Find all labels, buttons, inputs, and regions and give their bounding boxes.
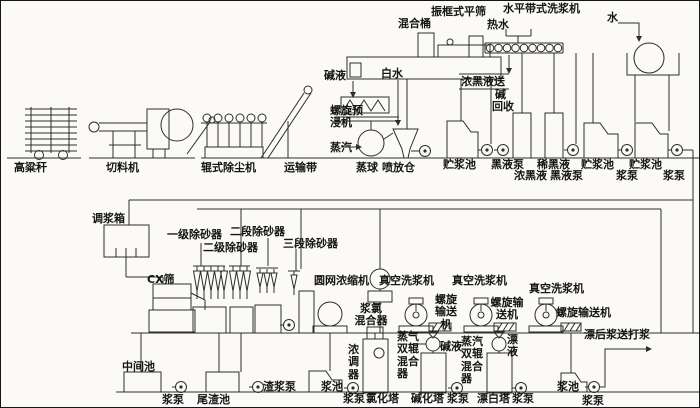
- label-horizontal-belt-washer: 水平带式洗浆机: [503, 3, 580, 15]
- treatment-towers: [363, 327, 512, 393]
- label-pulp-pump-7: 浆泵: [582, 395, 604, 407]
- horizontal-belt-washer: [469, 29, 563, 57]
- label-steam-inlet: 蒸汽: [330, 142, 352, 154]
- label-stock-blending-box: 调浆箱: [92, 213, 125, 225]
- belt-conveyor: [261, 86, 312, 158]
- label-pulp-chlorine-mixer: 浆氯 混合器: [350, 303, 392, 328]
- label-pulp-pump-3: 浆泵: [162, 394, 184, 406]
- label-pulp-pump-6: 浆泵: [512, 393, 534, 405]
- label-bleach-liquor: 漂 液: [507, 334, 518, 359]
- label-steam-double-roll-mixer-1: 蒸气 双辊 混合 器: [397, 331, 423, 380]
- label-screw-presoaker: 螺旋预 浸机: [330, 105, 370, 130]
- label-cx-screen: CX筛: [147, 274, 175, 286]
- cutting-machine: [89, 109, 215, 158]
- mixing-platform: [347, 33, 501, 79]
- water-drum: [618, 23, 679, 131]
- label-pulp-pump-5: 浆泵: [447, 393, 469, 405]
- label-pulp-pool-1: 浆池: [321, 381, 343, 393]
- label-conveyor-belt: 运输带: [284, 162, 317, 174]
- top-tank-row: [447, 53, 683, 158]
- label-intermediate-pool: 中间池: [122, 361, 155, 373]
- label-vacuum-washer-2: 真空洗浆机: [452, 275, 507, 287]
- label-pulp-pool-2: 浆池: [557, 381, 579, 393]
- cylinder-thickener: [313, 302, 347, 371]
- label-water: 水: [607, 12, 618, 24]
- label-chlorination-tower: 氯化塔: [366, 393, 399, 405]
- label-section3-desander: 三段除砂器: [283, 238, 338, 250]
- label-thick-black-liquor-sent: 浓黑液送: [461, 76, 505, 88]
- process-flow-diagram: 振框式平筛 混合桶 水平带式洗浆机 热水 水 碱液 白水 浓黑液送 碱 回收 螺…: [0, 0, 700, 408]
- label-cutting-machine: 切料机: [106, 162, 139, 174]
- label-blow-tank: 喷放仓: [382, 162, 415, 174]
- label-white-water: 白水: [381, 68, 403, 80]
- label-pulp-pump-2: 浆泵: [663, 170, 685, 182]
- blow-tank: [393, 79, 431, 158]
- desander-banks: [193, 238, 314, 372]
- label-screw-conveyor-3: 螺旋输送机: [556, 307, 611, 319]
- label-thick-black-liquor: 浓黑液: [514, 170, 547, 182]
- label-bleaching-tower: 漂白塔: [477, 393, 510, 405]
- label-roller-duster: 辊式除尘机: [201, 162, 256, 174]
- label-screw-conveyor-2: 螺旋输 送机: [487, 297, 527, 322]
- label-vibrating-frame-flat-screen: 振框式平筛: [431, 6, 486, 18]
- label-bleached-pulp-to-beating: 漂后浆送打浆: [584, 329, 650, 341]
- label-vacuum-washer-3: 真空洗浆机: [529, 283, 584, 295]
- label-steam-double-roll-mixer-2: 蒸汽 双辊 混合 器: [461, 336, 487, 385]
- label-pulp-storage-pool-3: 贮浆池: [629, 159, 662, 171]
- label-stage2-desander: 二级除砂器: [203, 242, 258, 254]
- label-pulp-pump-4: 浆泵: [343, 393, 365, 405]
- label-hot-water: 热水: [487, 19, 509, 31]
- label-screw-conveyor-1: 螺旋 输送 机: [433, 294, 459, 331]
- label-vacuum-washer-1: 真空洗浆机: [379, 275, 434, 287]
- label-stage1-desander: 一级除砂器: [167, 229, 222, 241]
- label-alkalization-tower: 碱化塔: [411, 393, 444, 405]
- label-tailings-pool: 尾渣池: [197, 394, 230, 406]
- label-black-liquor-pump-2: 黑液泵: [550, 170, 583, 182]
- label-pulp-storage-pool-1: 贮浆池: [443, 159, 476, 171]
- label-slag-pulp-pump: 渣浆泵: [263, 381, 296, 393]
- label-steaming-ball: 蒸球: [356, 162, 378, 174]
- label-cylinder-thickener: 圆网浓缩机: [314, 275, 369, 287]
- cx-screen: [141, 284, 205, 372]
- label-pulp-pump-1: 浆泵: [616, 170, 638, 182]
- label-pulp-storage-pool-2: 贮浆池: [581, 159, 614, 171]
- label-recovery: 回收: [492, 101, 514, 113]
- label-consistency-regulator: 浓 调 器: [348, 344, 359, 381]
- label-alkali-liquor-mid: 碱液: [440, 341, 462, 353]
- label-section2-desander: 二段除砂器: [230, 226, 285, 238]
- roller-duster: [201, 114, 267, 158]
- label-sorghum-stalks: 高粱秆: [14, 162, 47, 174]
- label-mixing-barrel: 混合桶: [398, 18, 431, 30]
- label-alkali-liquor-top: 碱液: [324, 70, 346, 82]
- sorghum-stack: [25, 107, 77, 160]
